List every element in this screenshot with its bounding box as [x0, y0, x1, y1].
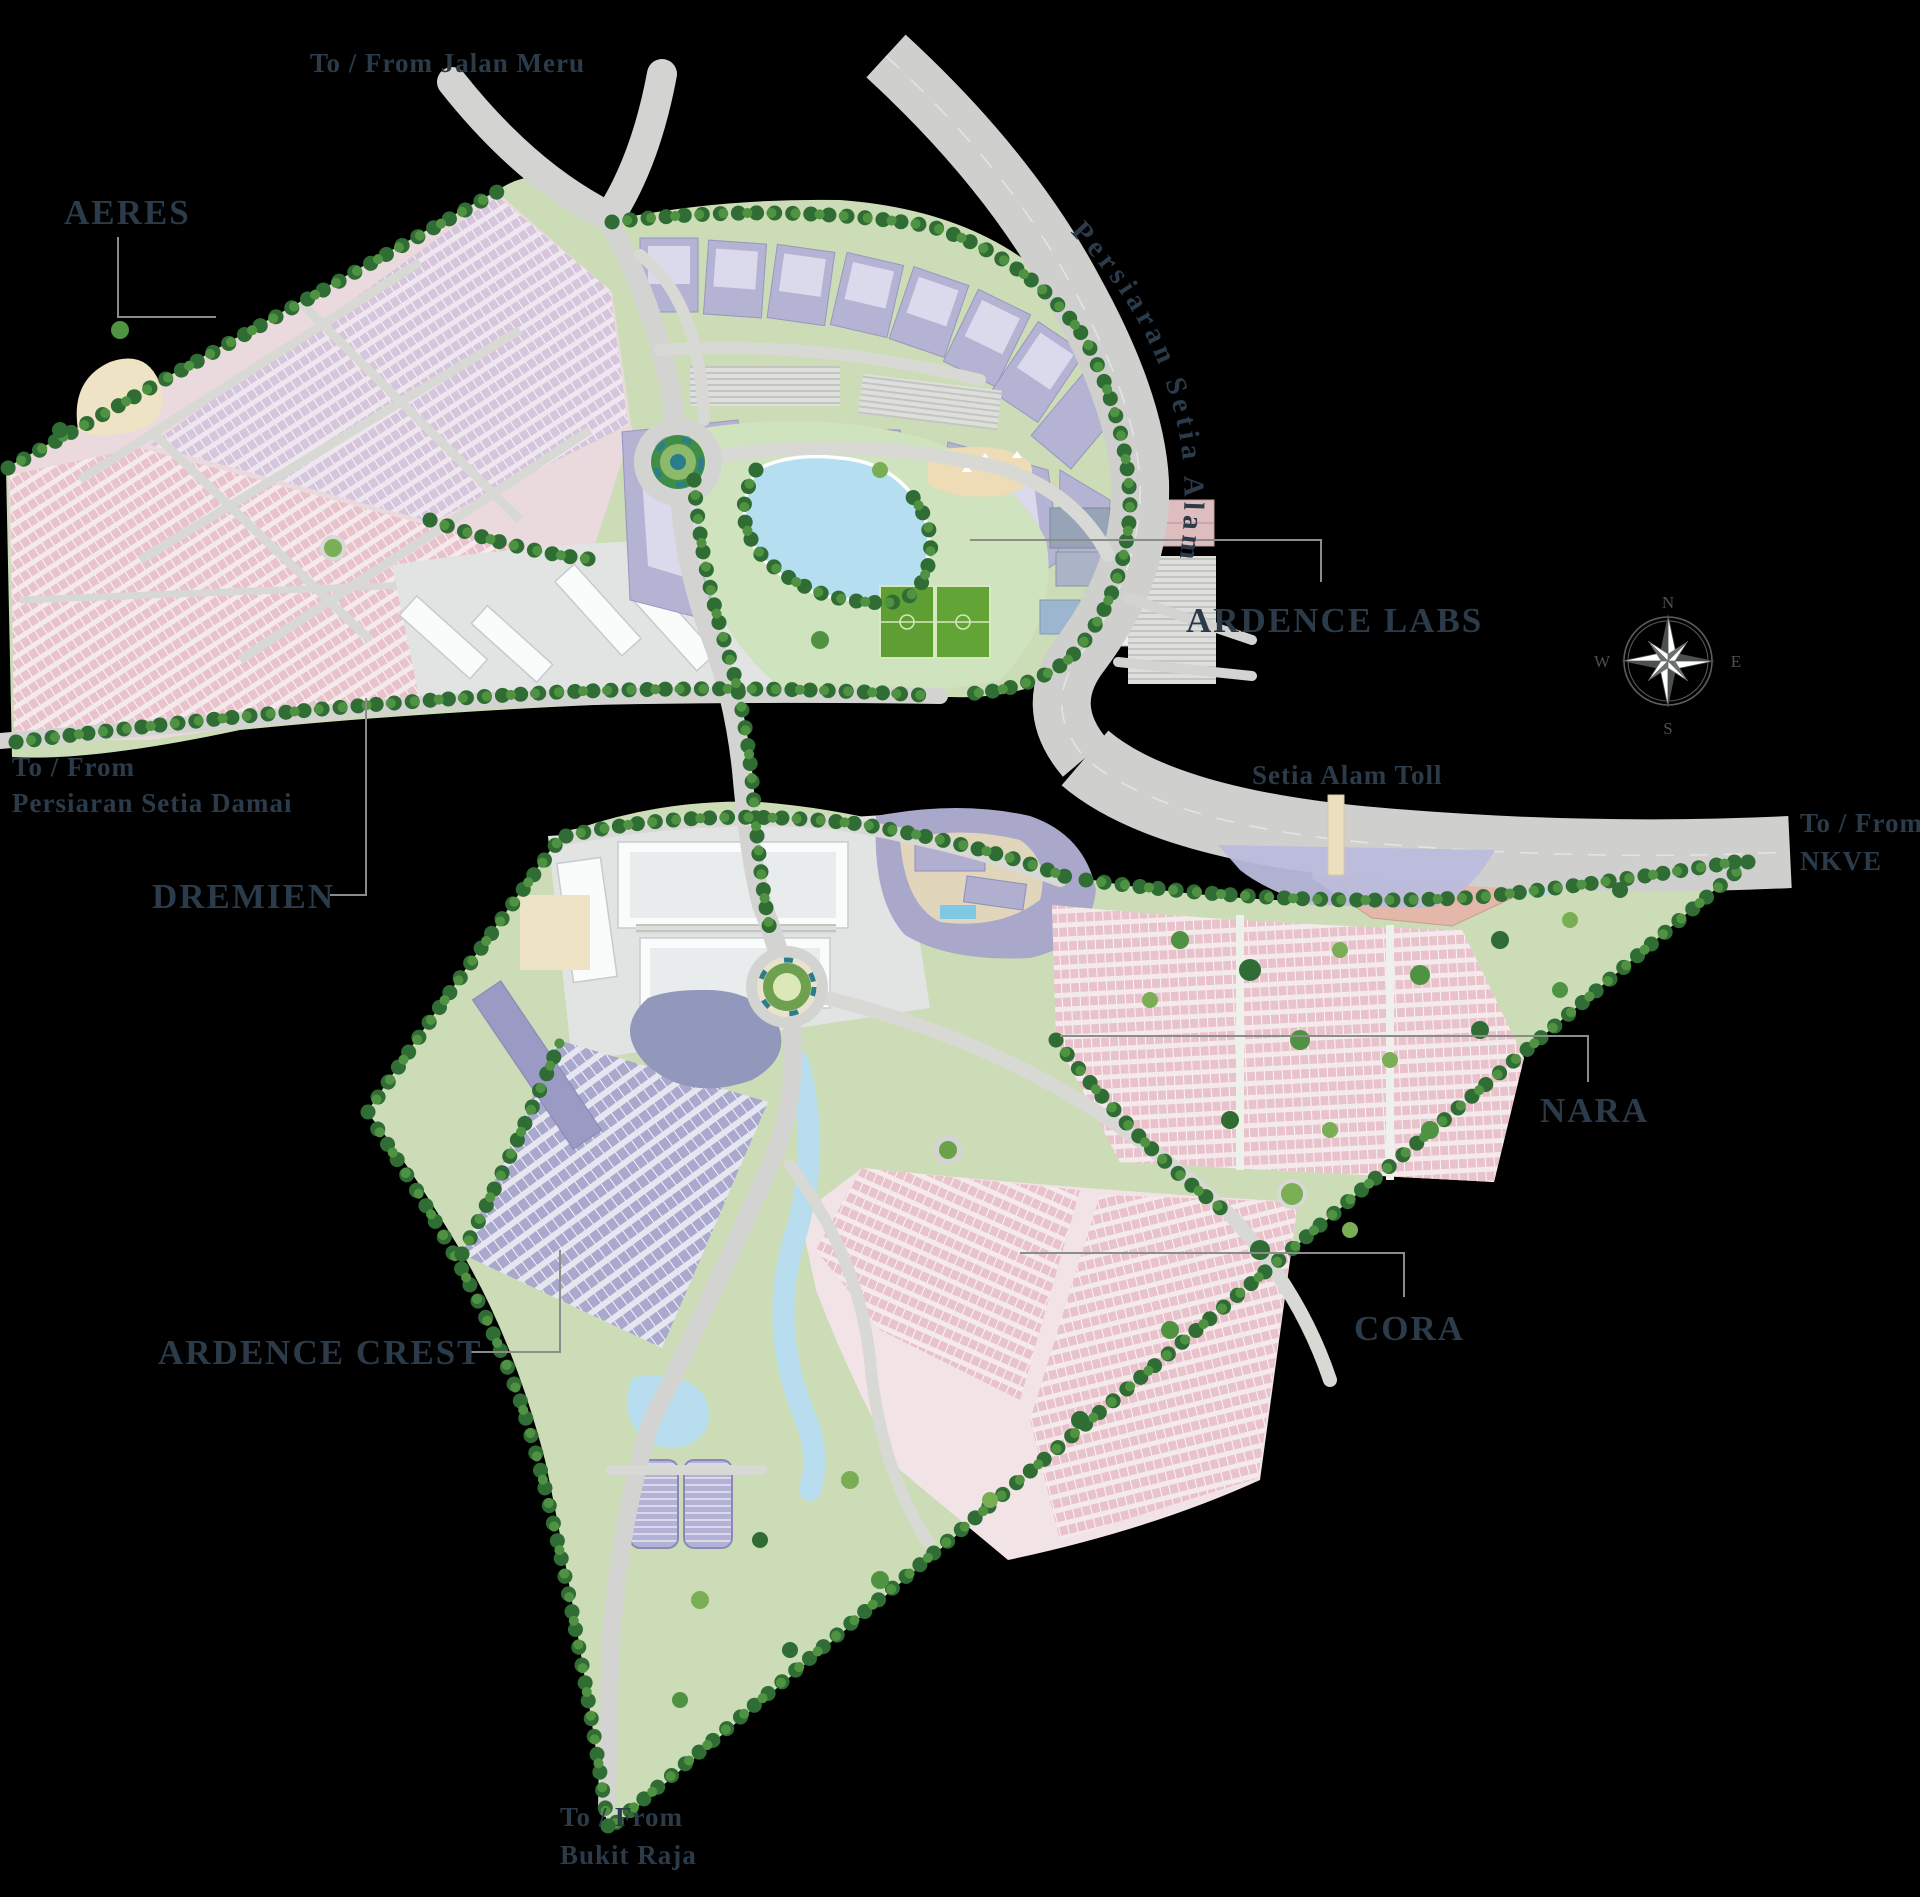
toll-gantry — [1328, 795, 1344, 875]
label-setia-alam-toll: Setia Alam Toll — [1252, 760, 1443, 790]
masterplan-map: To / From Jalan Meru Persiaran Setia Ala… — [0, 0, 1920, 1897]
label-nara: NARA — [1540, 1091, 1649, 1130]
dremien-leader — [330, 698, 366, 895]
compass-north-label: N — [1662, 593, 1674, 612]
compass-east-label: E — [1731, 652, 1741, 671]
crest-beige-field — [520, 895, 590, 970]
mini-roundabout-island — [939, 1141, 957, 1159]
garden-roundabout-north — [642, 426, 714, 498]
label-dremien: DREMIEN — [152, 877, 335, 916]
compass-rose: N S E W — [1594, 593, 1741, 738]
south-parcel — [367, 802, 1752, 1832]
label-aeres: AERES — [64, 193, 191, 232]
entrance-road-east — [610, 74, 662, 216]
label-nkve-1: To / From — [1800, 808, 1920, 838]
label-bukit-raja-2: Bukit Raja — [560, 1840, 697, 1870]
label-ardence-crest: ARDENCE CREST — [158, 1333, 483, 1372]
label-nkve-2: NKVE — [1800, 846, 1882, 876]
nara-housing — [1052, 905, 1524, 1182]
label-setia-damai-1: To / From — [12, 752, 135, 782]
compass-star — [1622, 615, 1714, 707]
compass-south-label: S — [1663, 719, 1672, 738]
aeres-leader — [118, 237, 216, 317]
label-bukit-raja-1: To / From — [560, 1802, 683, 1832]
cora-mini-roundabout — [1279, 1181, 1305, 1207]
apartment-pool — [940, 905, 976, 919]
label-cora: CORA — [1354, 1309, 1465, 1348]
commercial-parking — [690, 366, 840, 406]
label-ardence-labs: ARDENCE LABS — [1186, 601, 1483, 640]
compass-west-label: W — [1594, 652, 1611, 671]
label-jalan-meru: To / From Jalan Meru — [310, 48, 585, 78]
label-setia-damai-2: Persiaran Setia Damai — [12, 788, 292, 818]
aeres-mini-roundabout — [322, 537, 344, 559]
garden-roundabout-south — [753, 953, 821, 1021]
